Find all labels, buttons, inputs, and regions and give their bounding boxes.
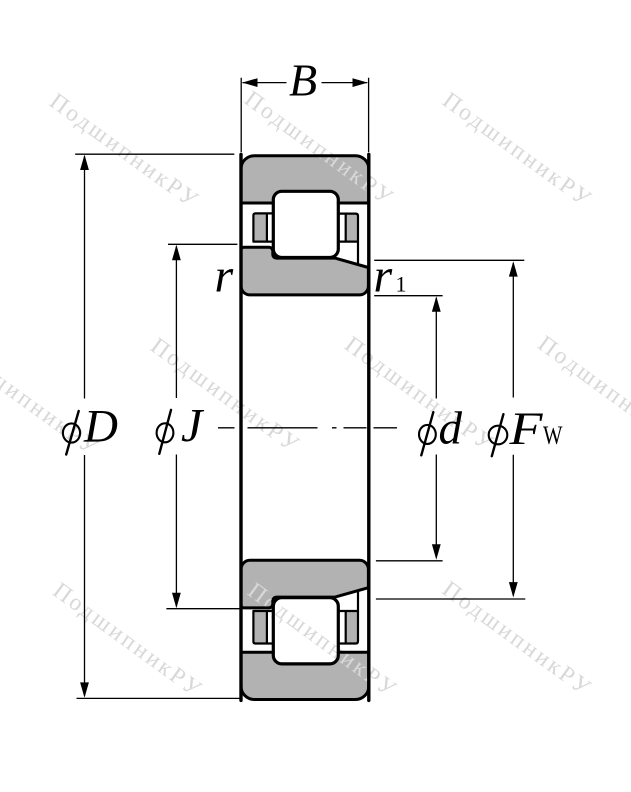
svg-text:W: W — [543, 420, 563, 450]
svg-text:r: r — [215, 250, 234, 303]
svg-text:r: r — [374, 250, 393, 303]
svg-text:J: J — [181, 400, 205, 453]
svg-text:D: D — [83, 401, 118, 453]
svg-text:F: F — [508, 403, 544, 455]
svg-text:1: 1 — [396, 272, 407, 297]
svg-text:B: B — [289, 55, 317, 106]
svg-text:d: d — [439, 403, 463, 455]
